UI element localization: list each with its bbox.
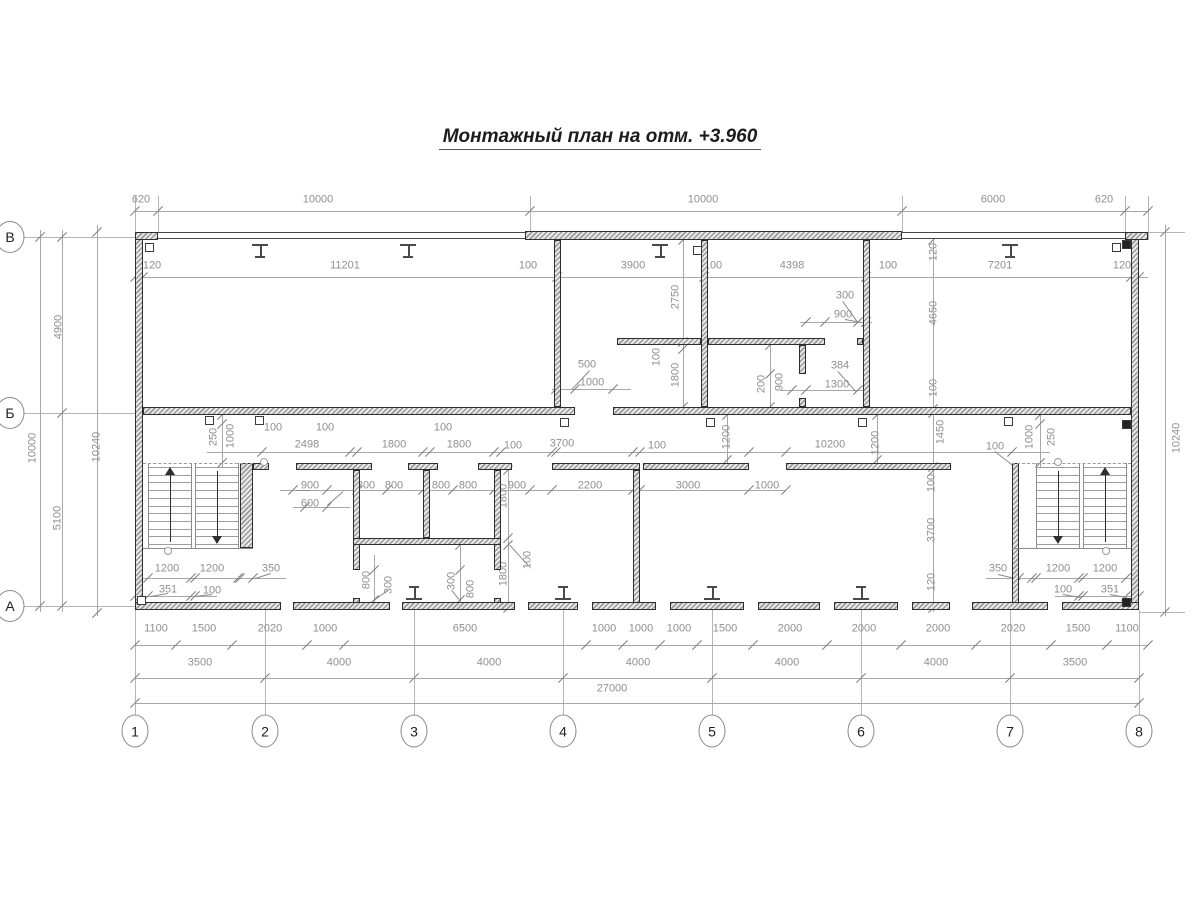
panel-clip [693,246,702,255]
wall-panel [554,240,561,407]
wall-panel [972,602,1048,610]
dimension-text: 500 [578,360,596,371]
stair-flight-side [191,463,192,548]
dimension-text: 4000 [477,658,501,669]
extension-line [530,196,531,232]
dimension-text: 3500 [1063,658,1087,669]
wall-panel [494,470,501,570]
dimension-text: 100 [434,423,452,434]
extension-line [158,196,159,232]
dimension-text: 10240 [92,432,103,463]
wall-panel [1125,232,1148,240]
dimension-text: 4900 [54,315,65,339]
dimension-text: 6000 [981,195,1005,206]
dimension-text: 2000 [926,624,950,635]
dimension-text: 100 [203,586,221,597]
wall-panel [857,338,863,345]
wall-panel [353,598,360,603]
dimension-text: 120 [929,243,940,261]
leader-line [327,491,344,506]
dimension-line [683,240,684,410]
dimension-text: 800 [385,481,403,492]
wall-panel [701,240,708,407]
dimension-text: 1100 [1115,624,1139,635]
dimension-text: 100 [929,379,940,397]
panel-clip [1004,417,1013,426]
dimension-text: 3700 [550,439,574,450]
wall-panel [912,602,950,610]
dimension-line [135,211,1148,212]
stair-landing-dashed [143,463,253,464]
dimension-text: 11201 [330,261,360,272]
stair-tread [148,544,191,545]
dimension-text: 2498 [295,440,319,451]
dimension-text: 351 [1101,585,1119,596]
wall-panel [863,240,870,407]
wall-panel [799,345,806,374]
dimension-line [207,452,1050,453]
panel-clip [145,243,154,252]
wall-panel [1012,463,1019,603]
wall-panel [528,602,578,610]
stair-flight-side [238,463,239,548]
wall-panel [494,598,501,603]
panel-clip [706,418,715,427]
stair-node-circle [164,547,172,555]
column-symbol [555,598,571,600]
dimension-text: 120 [1113,261,1131,272]
dimension-text: 10000 [28,433,39,464]
wall-panel [240,463,253,548]
dimension-text: 1200 [200,564,224,575]
dimension-text: 900 [775,373,786,391]
dimension-text: 100 [986,442,1004,453]
wall-panel [143,407,575,415]
stair-direction-line [217,471,219,542]
stair-flight-side [1079,463,1080,548]
panel-clip [137,596,146,605]
column-symbol [1005,256,1015,258]
wall-panel [670,602,744,610]
dimension-text: 1000 [313,624,337,635]
dimension-line [460,538,461,606]
dimension-text: 100 [648,441,666,452]
stair-direction-line [1105,471,1107,542]
stair-direction-line [1058,471,1060,542]
wall-panel [643,463,749,470]
wall-panel [1131,232,1139,610]
dimension-text: 1800 [671,363,682,387]
column-symbol [655,256,665,258]
column-symbol [403,256,413,258]
dimension-line [40,230,41,612]
dimension-line [986,578,1139,579]
dimension-text: 4000 [775,658,799,669]
wall-panel [135,232,143,610]
dimension-text: 900 [834,310,852,321]
floor-plan-drawing: Монтажный план на отм. +3.960 6201000010… [0,0,1200,900]
dimension-text: 1200 [722,425,733,449]
dimension-text: 3500 [188,658,212,669]
extension-line [1125,196,1126,232]
dimension-text: 4398 [780,261,804,272]
panel-clip [205,416,214,425]
dimension-text: 1500 [1066,624,1090,635]
axis-bubble-Б: Б [0,397,25,429]
dimension-text: 1000 [755,481,779,492]
extension-line [414,610,415,716]
anchor-block [1122,420,1131,429]
dimension-text: 2020 [258,624,282,635]
dimension-text: 1200 [1046,564,1070,575]
dimension-text: 200 [757,375,768,393]
dimension-text: 100 [1054,585,1072,596]
column-symbol [255,256,265,258]
dimension-text: 120 [927,573,938,591]
stair-arrow-up [1100,467,1110,475]
wall-panel [552,463,640,470]
dimension-text: 1000 [667,624,691,635]
dimension-text: 3900 [621,261,645,272]
dimension-text: 800 [432,481,450,492]
column-symbol [853,598,869,600]
dimension-text: 300 [447,572,458,590]
wall-panel [708,338,825,345]
dimension-text: 900 [301,481,319,492]
wall-panel [834,602,898,610]
stair-tread [1036,467,1079,468]
dimension-text: 1000 [629,624,653,635]
dimension-text: 350 [989,564,1007,575]
column-symbol [704,598,720,600]
wall-panel [135,602,281,610]
dimension-line [62,230,63,612]
panel-clip [1112,243,1121,252]
dimension-text: 300 [836,291,854,302]
dimension-text: 100 [523,551,534,569]
extension-line [902,196,903,232]
dimension-text: 100 [264,423,282,434]
axis-bubble-1: 1 [122,715,149,748]
dimension-text: 10200 [815,440,846,451]
stair-arrow-down [212,536,222,544]
dimension-text: 5100 [53,506,64,530]
stair-tread [195,544,238,545]
dimension-text: 4000 [924,658,948,669]
stair-flight-side [1126,463,1127,548]
wall-panel [758,602,820,610]
stair-tread [1083,544,1126,545]
stair-node-circle [1054,458,1062,466]
dimension-text: 10000 [688,195,719,206]
dimension-text: 1100 [144,624,168,635]
dimension-text: 100 [316,423,334,434]
dimension-text: 2750 [671,285,682,309]
dimension-line [135,645,1148,646]
dimension-text: 600 [301,499,319,510]
dimension-text: 2200 [578,481,602,492]
dimension-text: 900 [508,481,526,492]
dimension-text: 100 [504,441,522,452]
dimension-text: 384 [831,361,849,372]
wall-panel [293,602,390,610]
dimension-text: 3700 [927,518,938,542]
dimension-line [97,225,98,616]
wall-panel [478,463,512,470]
axis-bubble-2: 2 [252,715,279,748]
dimension-text: 2020 [1001,624,1025,635]
wall-panel [353,538,501,545]
dimension-text: 351 [159,585,177,596]
wall-panel [617,338,701,345]
dimension-line [552,389,631,390]
dimension-text: 4650 [929,301,940,325]
dimension-text: 10000 [303,195,334,206]
stair-node-circle [260,458,268,466]
dimension-text: 100 [879,261,897,272]
dimension-text: 2000 [852,624,876,635]
wall-panel [296,463,372,470]
wall-panel [613,407,1131,415]
dimension-text: 800 [459,481,477,492]
dimension-text: 100 [927,474,938,492]
dimension-text: 1200 [1093,564,1117,575]
panel-clip [560,418,569,427]
axis-bubble-А: А [0,590,25,622]
dimension-line [135,703,1139,704]
axis-bubble-3: 3 [401,715,428,748]
dimension-text: 800 [362,571,373,589]
dimension-text: 4000 [626,658,650,669]
dimension-text: 4000 [327,658,351,669]
stair-landing-line [1012,548,1131,549]
dimension-text: 800 [466,580,477,598]
column-symbol [406,598,422,600]
dimension-text: 1200 [155,564,179,575]
stair-landing-dashed [1012,463,1131,464]
dimension-line [1165,225,1166,616]
dimension-text: 1200 [871,431,882,455]
wall-panel [633,470,640,603]
dimension-text: 7201 [988,261,1012,272]
dimension-text: 1000 [592,624,616,635]
dimension-text: 10240 [1172,423,1183,454]
wall-panel [353,470,360,570]
panel-clip [858,418,867,427]
dimension-text: 27000 [597,684,628,695]
dimension-text: 1000 [1025,425,1036,449]
anchor-block [1122,240,1131,249]
extension-line [563,610,564,716]
axis-bubble-6: 6 [848,715,875,748]
dimension-text: 6500 [453,624,477,635]
stair-tread [1036,544,1079,545]
extension-line [1148,196,1149,240]
dimension-text: 120 [143,261,161,272]
dimension-text: 1800 [447,440,471,451]
dimension-line [135,277,1148,278]
dimension-text: 1500 [713,624,737,635]
stair-tread [195,467,238,468]
wall-panel [525,231,902,240]
dimension-text: 2000 [778,624,802,635]
dimension-line [135,578,286,579]
stair-arrow-down [1053,536,1063,544]
axis-bubble-5: 5 [699,715,726,748]
wall-panel [402,602,515,610]
dimension-line [135,678,1139,679]
stair-node-circle [1102,547,1110,555]
dimension-text: 1000 [580,378,604,389]
dimension-text: 100 [519,261,537,272]
wall-panel [786,463,951,470]
axis-bubble-7: 7 [997,715,1024,748]
wall-panel [423,470,430,538]
dimension-text: 1450 [936,420,947,444]
drawing-title-text: Монтажный план на отм. +3.960 [439,126,762,150]
drawing-title: Монтажный план на отм. +3.960 [0,126,1200,148]
dimension-text: 3000 [676,481,700,492]
dimension-text: 250 [209,428,220,446]
wall-panel [408,463,438,470]
stair-direction-line [170,471,172,542]
wall-panel [592,602,656,610]
panel-clip [255,416,264,425]
stair-landing-line [143,548,253,549]
wall-panel [799,398,806,407]
dimension-text: 1000 [226,424,237,448]
axis-bubble-В: В [0,221,25,253]
wall-panel [135,232,158,240]
dimension-text: 100 [652,348,663,366]
stair-arrow-up [165,467,175,475]
axis-bubble-4: 4 [550,715,577,748]
dimension-text: 350 [262,564,280,575]
dimension-text: 250 [1047,428,1058,446]
dimension-text: 620 [132,195,150,206]
dimension-text: 1800 [382,440,406,451]
dimension-text: 1300 [825,380,849,391]
dimension-text: 620 [1095,195,1113,206]
dimension-text: 300 [384,576,395,594]
dimension-text: 1500 [192,624,216,635]
anchor-block [1122,598,1131,607]
axis-bubble-8: 8 [1126,715,1153,748]
